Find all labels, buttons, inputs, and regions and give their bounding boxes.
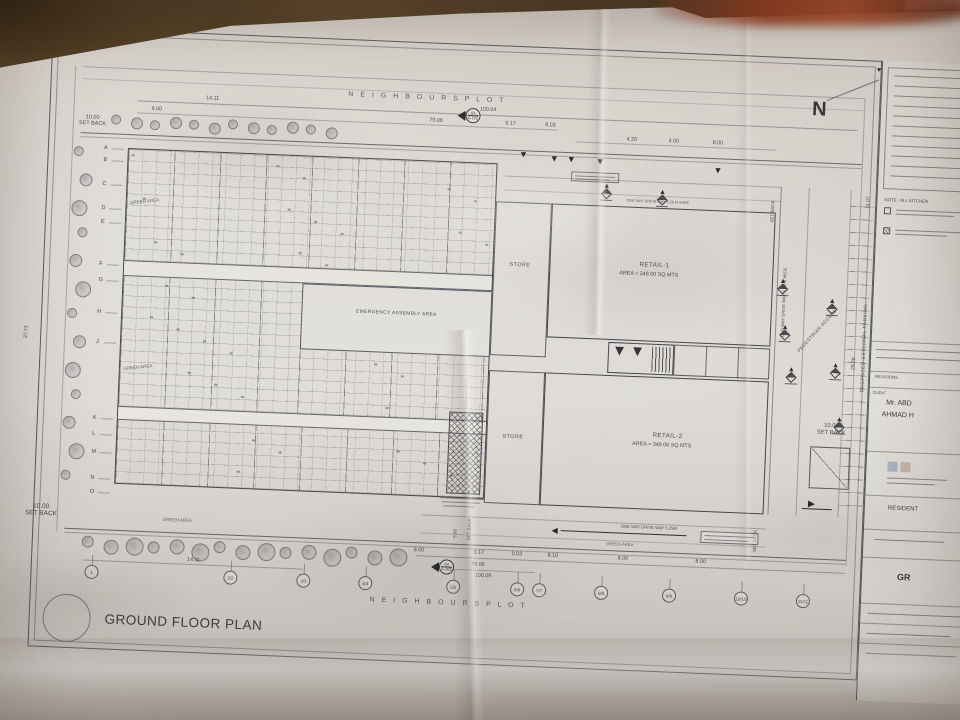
grid-tick [231, 561, 232, 571]
generated-symbols-layer: ▼▼▼▼▼▲▲▲▲▲▲▲▲64A-10264A-10214.118.00100.… [0, 6, 960, 720]
level-marker-diamond-icon [785, 372, 796, 383]
tree-icon [111, 114, 121, 124]
grid-tick [803, 584, 804, 594]
level-marker-icon: ▲ [831, 417, 848, 434]
furniture-mark [423, 462, 426, 464]
dimension-label: 8.00 [151, 106, 162, 112]
grid-letter: N [90, 475, 94, 481]
level-marker-line [656, 206, 668, 207]
tree-icon [235, 545, 251, 561]
grid-letter: D [101, 205, 105, 211]
tree-icon [306, 124, 316, 134]
grid-tick [104, 342, 116, 343]
dimension-label: 4.00 [669, 138, 680, 144]
grid-bubble: 10/10 [734, 591, 749, 606]
grid-tick [517, 572, 518, 582]
furniture-mark [150, 316, 153, 318]
furniture-mark [279, 451, 282, 453]
dimension-label: 79.06 [429, 117, 443, 124]
tree-icon [169, 539, 185, 555]
level-marker-line [833, 433, 845, 434]
tree-icon [71, 200, 88, 217]
section-marker-circle: 64A-102 [439, 559, 455, 575]
grid-letter: O [90, 489, 95, 495]
tree-icon [75, 281, 92, 298]
grid-bubble: 1 [84, 565, 99, 580]
furniture-mark [459, 232, 462, 234]
furniture-mark [325, 264, 328, 266]
grid-tick [100, 434, 112, 435]
grid-tick [99, 452, 111, 453]
tree-icon [64, 362, 81, 379]
furniture-mark [132, 154, 135, 156]
furniture-mark [230, 352, 233, 354]
grid-bubble: 8/8 [594, 586, 609, 601]
dimension-label: 14.11 [187, 557, 200, 564]
level-marker-diamond-icon [779, 329, 790, 340]
furniture-mark [314, 221, 317, 223]
dimension-label: 9.17 [505, 121, 516, 127]
grid-tick [98, 492, 110, 493]
level-marker-line [826, 315, 838, 316]
grid-bubble: 5/5 [446, 579, 461, 594]
blurred-red-object [655, 0, 960, 26]
street-tree-icon: ▼ [550, 154, 559, 163]
level-marker-diamond-icon [830, 368, 841, 379]
level-marker-line [776, 295, 788, 296]
dimension-label: 8.10 [547, 553, 558, 559]
furniture-mark [397, 450, 400, 452]
level-marker-line [829, 379, 841, 380]
dimension-label: 8.00 [713, 140, 724, 146]
grid-tick [366, 566, 367, 576]
grid-tick [107, 264, 119, 265]
level-marker-icon: ▲ [824, 299, 841, 316]
furniture-mark [447, 188, 450, 190]
tree-icon [77, 227, 87, 237]
furniture-mark [299, 252, 302, 254]
grid-letter: F [99, 261, 103, 267]
grid-letter: M [91, 449, 96, 455]
street-tree-icon: ▼ [519, 150, 528, 159]
dimension-label: 0.03 [511, 551, 522, 557]
furniture-mark [203, 340, 206, 342]
grid-tick [539, 573, 540, 583]
grid-letter: C [102, 181, 106, 187]
furniture-mark [303, 177, 306, 179]
level-marker-diamond-icon [657, 194, 668, 205]
section-marker-circle: 64A-102 [465, 108, 481, 124]
grid-bubble: 7/7 [532, 583, 547, 598]
floor-plan-sheet: N E I G H B O U R S P L O T 10.00 SET BA… [0, 6, 960, 720]
tree-icon [286, 122, 298, 134]
grid-bubble: 11/11 [796, 594, 811, 609]
photo-of-blueprint: N E I G H B O U R S P L O T 10.00 SET BA… [0, 0, 960, 720]
level-marker-line [779, 341, 791, 342]
dimension-label: 9.17 [474, 550, 485, 556]
grid-tick [601, 576, 602, 586]
grid-bubble: 4/4 [358, 576, 373, 591]
tree-icon [60, 470, 70, 480]
grid-bubble: 6/6 [510, 582, 525, 597]
furniture-mark [385, 407, 388, 409]
tree-icon [169, 117, 181, 129]
grid-letter: B [103, 157, 107, 163]
level-marker-icon: ▲ [777, 325, 794, 342]
furniture-mark [214, 384, 217, 386]
grid-letter: L [92, 431, 95, 437]
furniture-mark [188, 372, 191, 374]
grid-tick [741, 582, 742, 592]
tree-icon [147, 541, 159, 553]
tree-icon [73, 335, 87, 349]
grid-tick [111, 160, 123, 161]
grid-tick [304, 564, 305, 574]
street-tree-icon: ▼ [596, 157, 605, 166]
level-marker-diamond-icon [833, 422, 844, 433]
level-marker-line [600, 199, 612, 200]
furniture-mark [241, 396, 244, 398]
tree-icon [150, 120, 160, 130]
grid-tick [105, 312, 117, 313]
blueprint-paper: N E I G H B O U R S P L O T 10.00 SET BA… [0, 0, 960, 720]
level-marker-line [785, 383, 797, 384]
furniture-mark [237, 471, 240, 473]
furniture-mark [450, 475, 453, 477]
tree-icon [67, 308, 77, 318]
furniture-mark [474, 200, 477, 202]
level-marker-diamond-icon [777, 283, 788, 294]
level-marker-icon: ▲ [654, 190, 671, 207]
tree-icon [125, 537, 144, 556]
tree-icon [69, 254, 83, 268]
grid-tick [106, 280, 118, 281]
grid-tick [98, 478, 110, 479]
grid-tick [101, 418, 113, 419]
grid-tick [109, 222, 121, 223]
tree-icon [228, 119, 238, 129]
tree-icon [103, 539, 119, 555]
grid-letter: E [101, 219, 105, 225]
grid-bubble: 3/3 [296, 573, 311, 588]
grid-letter: A [104, 145, 108, 151]
furniture-mark [143, 198, 146, 200]
grid-tick [109, 208, 121, 209]
tree-icon [257, 543, 276, 562]
section-marker: 64A-102 [457, 108, 481, 124]
tree-icon [189, 120, 199, 130]
street-tree-icon: ▼ [713, 166, 722, 175]
dimension-label: 79.06 [471, 561, 485, 568]
grid-tick [110, 184, 122, 185]
dimension-label: 14.11 [206, 95, 219, 102]
tree-icon [208, 122, 220, 134]
dimension-label: 8.00 [414, 547, 425, 553]
level-marker-icon: ▲ [598, 183, 615, 200]
tree-icon [130, 117, 142, 129]
section-marker-arrow-icon [457, 110, 465, 120]
furniture-mark [374, 363, 377, 365]
dimension-label: 8.00 [695, 559, 706, 565]
dimension-label: 8.00 [617, 555, 628, 561]
grid-tick [669, 579, 670, 589]
dimension-label: 100.09 [475, 573, 492, 580]
furniture-mark [341, 233, 344, 235]
grid-bubble: 9/9 [662, 588, 677, 603]
furniture-mark [192, 297, 195, 299]
tree-icon [74, 146, 84, 156]
tree-icon [389, 548, 408, 567]
furniture-mark [401, 375, 404, 377]
tree-icon [323, 548, 342, 567]
tree-icon [301, 545, 317, 561]
dimension-label: 8.03 [545, 122, 556, 128]
furniture-mark [154, 241, 157, 243]
section-marker-sheet: A-102 [468, 116, 478, 121]
furniture-mark [181, 253, 184, 255]
level-marker-icon: ▲ [827, 363, 844, 380]
grid-letter: G [98, 277, 103, 283]
level-marker-diamond-icon [826, 303, 837, 314]
tree-icon [247, 122, 259, 134]
street-tree-icon: ▼ [567, 155, 576, 164]
grid-letter: K [93, 415, 97, 421]
tree-icon [79, 173, 93, 187]
tree-icon [345, 546, 357, 558]
tree-icon [71, 389, 81, 399]
grid-tick [454, 570, 455, 580]
grid-tick [92, 555, 93, 565]
tree-icon [279, 547, 291, 559]
level-marker-icon: ▲ [783, 367, 800, 384]
dimension-label: 4.20 [627, 136, 638, 142]
grid-bubble: 2/2 [223, 570, 238, 585]
level-marker-icon: ▲ [774, 279, 791, 296]
furniture-mark [485, 244, 488, 246]
level-marker-diamond-icon [601, 188, 612, 199]
grid-tick [112, 148, 124, 149]
furniture-mark [252, 439, 255, 441]
tree-icon [213, 541, 225, 553]
furniture-mark [288, 209, 291, 211]
section-marker-arrow-icon [431, 561, 439, 571]
grid-letter: J [96, 339, 99, 345]
tree-icon [267, 125, 277, 135]
furniture-mark [165, 285, 168, 287]
section-marker: 64A-102 [431, 559, 455, 575]
section-marker-sheet: A-102 [441, 567, 451, 572]
dimension-label: 100.04 [480, 106, 497, 113]
tree-icon [68, 443, 85, 460]
tree-icon [325, 127, 337, 139]
tree-icon [367, 550, 383, 566]
furniture-mark [276, 165, 279, 167]
grid-letter: H [97, 309, 101, 315]
furniture-mark [177, 328, 180, 330]
tree-icon [62, 416, 76, 430]
tree-icon [82, 535, 94, 547]
